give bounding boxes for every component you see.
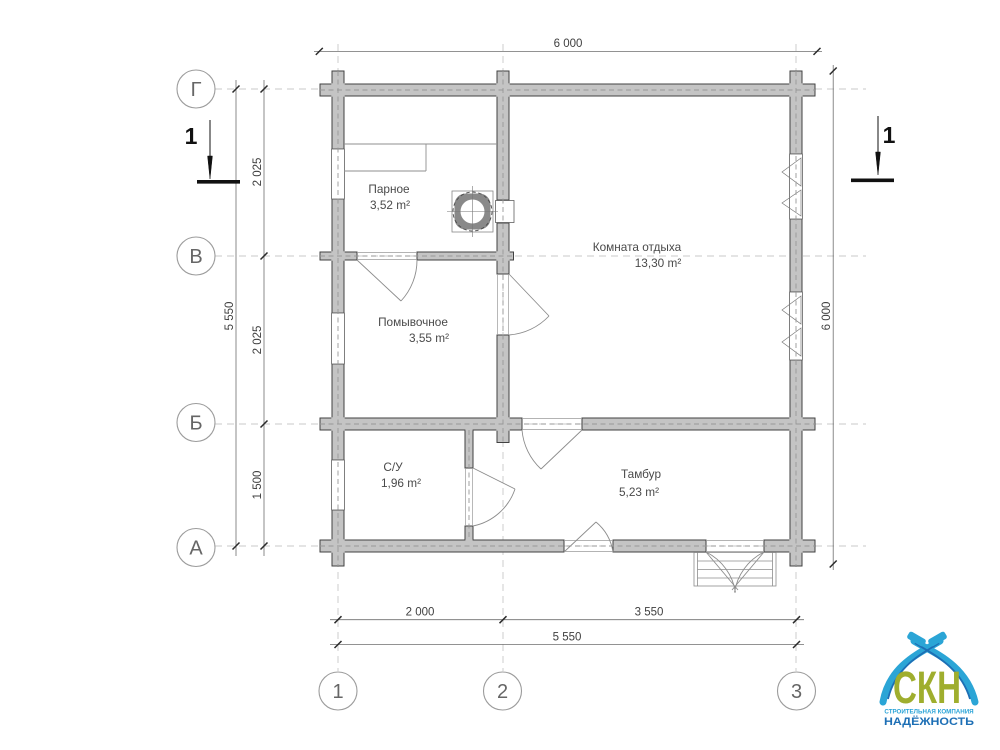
svg-text:1: 1 <box>332 681 343 703</box>
svg-text:3,52 m²: 3,52 m² <box>370 198 410 212</box>
svg-text:2 025: 2 025 <box>252 158 264 187</box>
svg-text:3 550: 3 550 <box>635 607 664 619</box>
svg-text:Тамбур: Тамбур <box>621 467 661 481</box>
svg-text:Б: Б <box>189 413 202 435</box>
svg-text:6 000: 6 000 <box>554 38 583 50</box>
svg-text:СКН: СКН <box>893 662 961 713</box>
svg-text:НАДЁЖНОСТЬ: НАДЁЖНОСТЬ <box>884 715 974 728</box>
svg-text:1,96 m²: 1,96 m² <box>381 476 421 490</box>
svg-text:2: 2 <box>497 681 508 703</box>
svg-text:1 500: 1 500 <box>252 471 264 500</box>
svg-text:5 550: 5 550 <box>224 302 236 331</box>
svg-text:С/У: С/У <box>383 460 403 474</box>
svg-text:13,30 m²: 13,30 m² <box>635 256 682 270</box>
svg-text:А: А <box>189 538 203 560</box>
svg-text:СТРОИТЕЛЬНАЯ КОМПАНИЯ: СТРОИТЕЛЬНАЯ КОМПАНИЯ <box>884 709 974 716</box>
svg-text:1: 1 <box>185 123 198 149</box>
svg-text:6 000: 6 000 <box>821 302 833 331</box>
svg-text:5 550: 5 550 <box>553 632 582 644</box>
svg-text:3,55 m²: 3,55 m² <box>409 331 449 345</box>
svg-text:2 000: 2 000 <box>406 607 435 619</box>
svg-text:Парное: Парное <box>368 182 410 196</box>
svg-text:2 025: 2 025 <box>252 326 264 355</box>
svg-text:1: 1 <box>883 122 896 148</box>
svg-text:3: 3 <box>791 681 802 703</box>
svg-text:Помывочное: Помывочное <box>378 315 448 329</box>
svg-text:Комната отдыха: Комната отдыха <box>593 240 682 254</box>
svg-text:5,23 m²: 5,23 m² <box>619 485 659 499</box>
svg-text:Г: Г <box>191 79 202 101</box>
svg-text:В: В <box>189 246 202 268</box>
